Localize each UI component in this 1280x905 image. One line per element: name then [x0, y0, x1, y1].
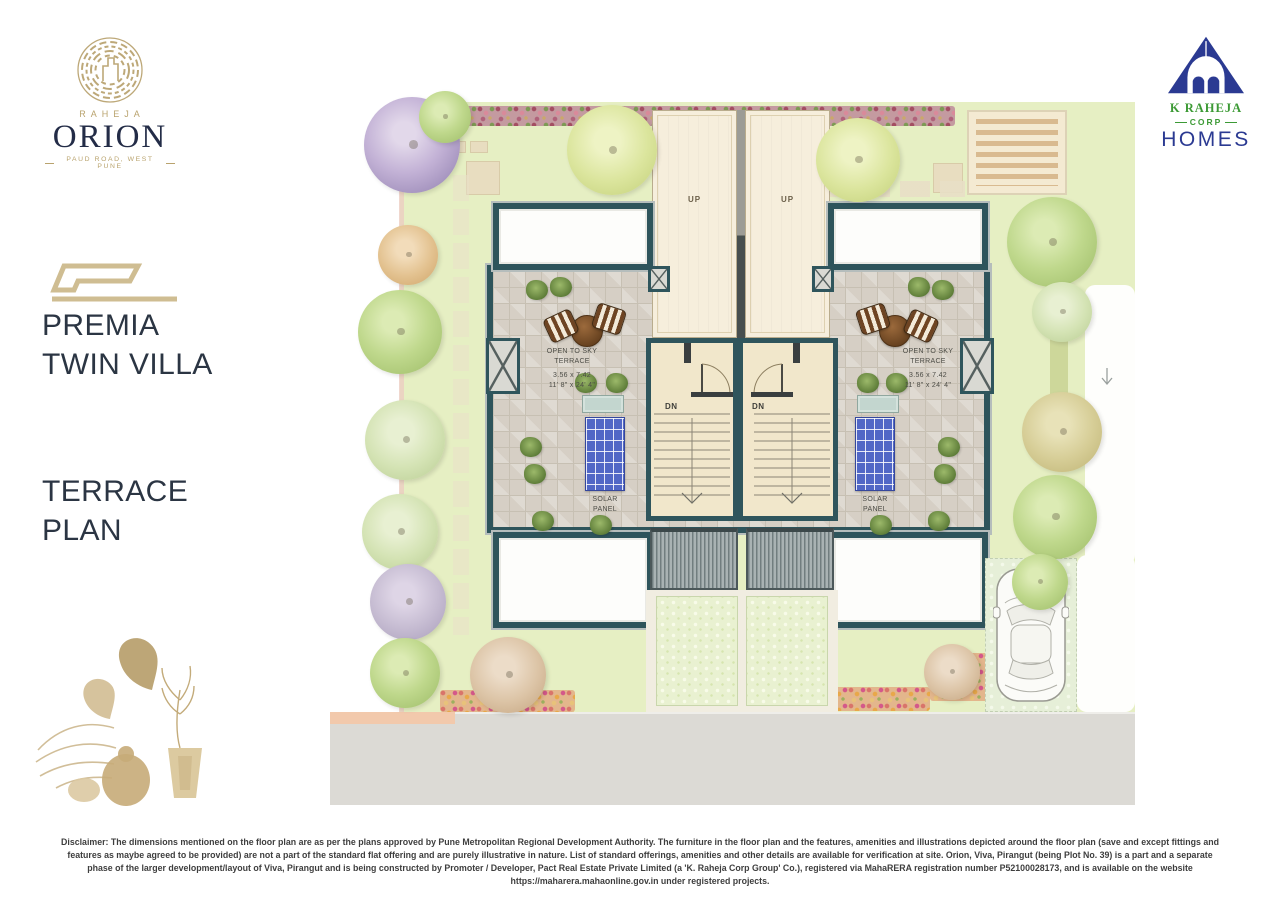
tree-icon — [378, 225, 438, 285]
louvered-roof-right — [746, 528, 834, 590]
terrace-annotation-left: OPEN TO SKY TERRACE 3.56 x 7.42 11' 8" x… — [527, 347, 617, 391]
down-arrow-icon — [1100, 367, 1114, 389]
bench-right — [857, 395, 899, 413]
tree-icon — [365, 400, 445, 480]
shrub — [928, 511, 950, 531]
pergola — [967, 110, 1067, 195]
tree-icon — [1012, 554, 1068, 610]
shrub — [908, 277, 930, 297]
roof-slab-bottom-left — [493, 532, 653, 628]
dn-label: DN — [752, 402, 765, 411]
dn-label: DN — [665, 402, 678, 411]
terrace-annotation-right: OPEN TO SKY TERRACE 3.56 x 7.42 11' 8" x… — [883, 347, 973, 391]
solar-annotation-right: SOLAR PANEL — [840, 495, 910, 515]
kraheja-homes-logo: K RAHEJA CORP HOMES — [1160, 33, 1252, 152]
tree-icon — [1032, 282, 1092, 342]
orion-logo: RAHEJA ORION PAUD ROAD, WEST PUNE — [45, 36, 175, 170]
roof-slab-bottom-right — [828, 532, 988, 628]
courtyard-right — [746, 596, 828, 706]
shrub — [532, 511, 554, 531]
courtyard-left — [656, 596, 738, 706]
flower-bed-bottom-center — [830, 687, 930, 711]
tree-icon — [1013, 475, 1097, 559]
shrub — [938, 437, 960, 457]
stepping-stone-column — [453, 175, 469, 635]
tree-icon — [567, 105, 657, 195]
plan-title: TERRACE PLAN — [42, 472, 188, 550]
shrub — [524, 464, 546, 484]
plan-title-line1: TERRACE — [42, 472, 188, 511]
solar-panel-right — [855, 417, 895, 491]
shrub — [520, 437, 542, 457]
stair-up-right: UP — [745, 110, 830, 338]
tree-icon — [358, 290, 442, 374]
louvered-roof-left — [650, 528, 738, 590]
shrub — [857, 373, 879, 393]
project-title-line1: PREMIA — [42, 306, 213, 345]
shrub — [932, 280, 954, 300]
kraheja-triangle-icon — [1168, 33, 1244, 97]
plan-title-line2: PLAN — [42, 511, 188, 550]
tree-icon — [924, 644, 980, 700]
roof-slab-top-right — [828, 203, 988, 270]
solar-annotation-left: SOLAR PANEL — [570, 495, 640, 515]
tree-icon — [362, 494, 438, 570]
project-title-line2: TWIN VILLA — [42, 345, 213, 384]
lawn-fade-bottom-right — [1077, 555, 1135, 712]
tree-icon — [370, 564, 446, 640]
up-label: UP — [746, 195, 829, 204]
premia-collection-icon — [42, 258, 192, 306]
up-label: UP — [653, 195, 736, 204]
stair-up-left: UP — [652, 110, 737, 338]
tree-icon — [816, 118, 900, 202]
road — [330, 712, 1135, 805]
shrub — [934, 464, 956, 484]
project-title: PREMIA TWIN VILLA — [42, 306, 213, 384]
bench-left — [582, 395, 624, 413]
roof-slab-top-left — [493, 203, 653, 270]
vent-box-right — [812, 266, 834, 292]
skylight-shaft-left — [486, 338, 520, 394]
brochure-page: RAHEJA ORION PAUD ROAD, WEST PUNE K RAHE… — [0, 0, 1280, 905]
tree-icon — [1007, 197, 1097, 287]
orion-brand-text: RAHEJA — [45, 109, 175, 119]
stepping-stone — [470, 141, 488, 153]
party-wall — [737, 110, 745, 338]
vent-box-left — [648, 266, 670, 292]
tree-icon — [470, 637, 546, 713]
orion-emblem-icon — [76, 36, 144, 104]
shrub — [870, 515, 892, 535]
tree-icon — [419, 91, 471, 143]
kraheja-company-text: K RAHEJA — [1160, 101, 1252, 116]
orion-tagline: PAUD ROAD, WEST PUNE — [45, 156, 175, 170]
tree-icon — [370, 638, 440, 708]
shrub — [526, 280, 548, 300]
pergola-slats — [976, 119, 1058, 186]
shrub — [590, 515, 612, 535]
road-edge-strip — [330, 712, 455, 724]
disclaimer-text: Disclaimer: The dimensions mentioned on … — [55, 836, 1225, 888]
kraheja-homes-text: HOMES — [1160, 128, 1252, 152]
foliage-decor-illustration — [30, 630, 215, 810]
tree-icon — [1022, 392, 1102, 472]
kraheja-corp-text: CORP — [1160, 117, 1252, 127]
stepping-stone — [466, 161, 500, 195]
shrub — [550, 277, 572, 297]
terrace-floor-plan: UP UP — [330, 95, 1135, 805]
solar-panel-left — [585, 417, 625, 491]
staircase-block: DN DN — [646, 338, 838, 521]
orion-name-text: ORION — [45, 119, 175, 155]
